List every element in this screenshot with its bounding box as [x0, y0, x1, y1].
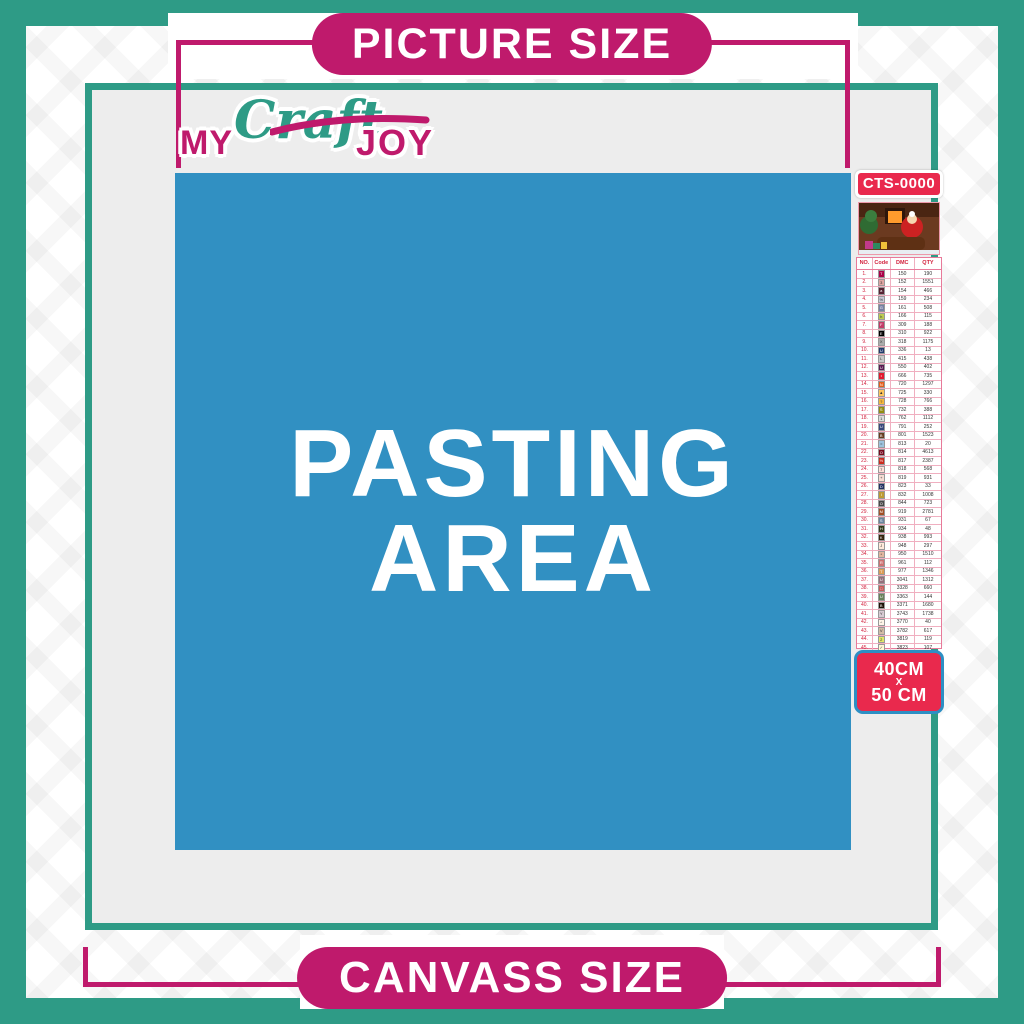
row-qty: 297 [915, 542, 941, 550]
row-dmc: 977 [891, 568, 915, 576]
row-dmc: 336 [891, 347, 915, 355]
row-qty: 234 [915, 296, 941, 304]
row-qty: 112 [915, 559, 941, 567]
row-symbol: U [873, 593, 891, 601]
row-dmc: 762 [891, 415, 915, 423]
row-dmc: 814 [891, 449, 915, 457]
row-dmc: 934 [891, 525, 915, 533]
row-qty: 115 [915, 313, 941, 321]
row-number: 37. [857, 576, 873, 584]
chart-row: 31.H93448 [857, 525, 941, 534]
row-qty: 931 [915, 474, 941, 482]
row-symbol: ? [873, 398, 891, 406]
chart-row: 42.^377040 [857, 619, 941, 628]
row-symbol: T [873, 270, 891, 278]
chart-row: 32.K938993 [857, 534, 941, 543]
row-symbol: B [873, 602, 891, 610]
row-number: 7. [857, 321, 873, 329]
row-qty: 13 [915, 347, 941, 355]
row-number: 35. [857, 559, 873, 567]
chart-row: 20.B8011523 [857, 432, 941, 441]
row-dmc: 159 [891, 296, 915, 304]
row-number: 15. [857, 389, 873, 397]
row-symbol: • [873, 372, 891, 380]
row-symbol: B [873, 432, 891, 440]
chart-row: 9.X3181175 [857, 338, 941, 347]
row-number: 33. [857, 542, 873, 550]
row-dmc: 154 [891, 287, 915, 295]
chart-row: 7.F309188 [857, 321, 941, 330]
row-qty: 67 [915, 517, 941, 525]
chart-row: 16.?728766 [857, 398, 941, 407]
row-dmc: 813 [891, 440, 915, 448]
chart-row: 43.V3782617 [857, 627, 941, 636]
row-symbol: U [873, 576, 891, 584]
row-number: 19. [857, 423, 873, 431]
row-symbol: V [873, 627, 891, 635]
row-qty: 1312 [915, 576, 941, 584]
row-number: 1. [857, 270, 873, 278]
header-dmc: DMC [891, 258, 915, 269]
row-symbol: K [873, 534, 891, 542]
row-number: 42. [857, 619, 873, 627]
row-dmc: 309 [891, 321, 915, 329]
row-dmc: 3770 [891, 619, 915, 627]
row-dmc: 725 [891, 389, 915, 397]
chart-row: 19.U791252 [857, 423, 941, 432]
row-number: 8. [857, 330, 873, 338]
product-thumbnail [858, 202, 940, 255]
row-qty: 402 [915, 364, 941, 372]
chart-row: 36.T9771346 [857, 568, 941, 577]
chart-row: 25.+819931 [857, 474, 941, 483]
canvas-size-badge: 40CM X 50 CM [854, 650, 944, 714]
chart-row: 4.%159234 [857, 296, 941, 305]
row-dmc: 166 [891, 313, 915, 321]
row-number: 17. [857, 406, 873, 414]
row-number: 25. [857, 474, 873, 482]
row-qty: 119 [915, 636, 941, 644]
color-chart-table: NO. Code DMC QTY 1.T1501902.315215513.a1… [856, 257, 942, 649]
row-qty: 723 [915, 500, 941, 508]
product-code: CTS-0000 [863, 175, 935, 192]
row-qty: 252 [915, 423, 941, 431]
row-qty: 508 [915, 304, 941, 312]
chart-row: 35.R961112 [857, 559, 941, 568]
row-dmc: 3743 [891, 610, 915, 618]
row-dmc: 817 [891, 457, 915, 465]
row-number: 11. [857, 355, 873, 363]
row-number: 5. [857, 304, 873, 312]
bracket-bottom-left-vertical [83, 947, 88, 987]
chart-row: 1.T150190 [857, 270, 941, 279]
chart-row: 27.I8321008 [857, 491, 941, 500]
chart-row: 10.U33613 [857, 347, 941, 356]
row-dmc: 801 [891, 432, 915, 440]
row-number: 44. [857, 636, 873, 644]
row-number: 32. [857, 534, 873, 542]
row-dmc: 961 [891, 559, 915, 567]
row-dmc: 844 [891, 500, 915, 508]
chart-row: 15.▲725330 [857, 389, 941, 398]
row-qty: 4613 [915, 449, 941, 457]
bracket-top-right-vertical [845, 40, 850, 168]
row-symbol: E [873, 330, 891, 338]
row-symbol: 2 [873, 636, 891, 644]
row-symbol: T [873, 568, 891, 576]
row-number: 4. [857, 296, 873, 304]
chart-row: 28.O844723 [857, 500, 941, 509]
row-symbol: R [873, 559, 891, 567]
row-dmc: 791 [891, 423, 915, 431]
row-symbol: ▲ [873, 389, 891, 397]
chart-row: 12.U550402 [857, 364, 941, 373]
row-symbol: U [873, 364, 891, 372]
row-qty: 1346 [915, 568, 941, 576]
row-symbol: J [873, 542, 891, 550]
row-number: 34. [857, 551, 873, 559]
row-symbol: H [873, 525, 891, 533]
row-qty: 766 [915, 398, 941, 406]
row-number: 28. [857, 500, 873, 508]
row-dmc: 318 [891, 338, 915, 346]
row-qty: 33 [915, 483, 941, 491]
row-dmc: 950 [891, 551, 915, 559]
chart-row: 3.a154466 [857, 287, 941, 296]
row-number: 43. [857, 627, 873, 635]
row-symbol: D [873, 483, 891, 491]
row-dmc: 161 [891, 304, 915, 312]
row-qty: 2387 [915, 457, 941, 465]
row-symbol: L [873, 355, 891, 363]
row-qty: 1112 [915, 415, 941, 423]
pasting-area-line2: AREA [369, 512, 657, 606]
row-symbol: S [873, 517, 891, 525]
row-qty: 40 [915, 619, 941, 627]
row-dmc: 3782 [891, 627, 915, 635]
bracket-top-left-horizontal [176, 40, 324, 45]
row-number: 6. [857, 313, 873, 321]
pasting-area-line1: PASTING [289, 417, 737, 511]
row-qty: 1297 [915, 381, 941, 389]
chart-row: 37.U30411312 [857, 576, 941, 585]
row-symbol: 1 [873, 415, 891, 423]
row-dmc: 3328 [891, 585, 915, 593]
row-number: 38. [857, 585, 873, 593]
canvass-size-label: CANVASS SIZE [339, 953, 685, 1002]
row-symbol: a [873, 287, 891, 295]
row-qty: 2781 [915, 508, 941, 516]
row-number: 26. [857, 483, 873, 491]
row-qty: 660 [915, 585, 941, 593]
row-number: 21. [857, 440, 873, 448]
chart-row: 18.17621112 [857, 415, 941, 424]
size-height: 50 CM [871, 687, 927, 704]
row-number: 30. [857, 517, 873, 525]
row-symbol: F [873, 321, 891, 329]
row-symbol: M [873, 508, 891, 516]
row-number: 12. [857, 364, 873, 372]
row-qty: 568 [915, 466, 941, 474]
row-qty: 1680 [915, 602, 941, 610]
row-qty: 1551 [915, 279, 941, 287]
row-number: 27. [857, 491, 873, 499]
pasting-area: PASTING AREA [175, 173, 851, 850]
row-symbol: U [873, 347, 891, 355]
row-qty: 330 [915, 389, 941, 397]
row-dmc: 415 [891, 355, 915, 363]
row-number: 39. [857, 593, 873, 601]
row-dmc: 550 [891, 364, 915, 372]
row-symbol: 7 [873, 466, 891, 474]
row-dmc: 948 [891, 542, 915, 550]
row-dmc: 310 [891, 330, 915, 338]
chart-row: 14.N7201297 [857, 381, 941, 390]
row-qty: 922 [915, 330, 941, 338]
row-qty: 388 [915, 406, 941, 414]
row-qty: 20 [915, 440, 941, 448]
row-qty: 1510 [915, 551, 941, 559]
row-number: 41. [857, 610, 873, 618]
chart-row: 41.Y37431738 [857, 610, 941, 619]
chart-row: 34.*9501510 [857, 551, 941, 560]
row-dmc: 720 [891, 381, 915, 389]
row-number: 2. [857, 279, 873, 287]
chart-row: 11.L415438 [857, 355, 941, 364]
row-number: 3. [857, 287, 873, 295]
row-dmc: 818 [891, 466, 915, 474]
logo-swoosh-icon [270, 112, 430, 138]
picture-size-banner: PICTURE SIZE [312, 13, 712, 75]
row-qty: 735 [915, 372, 941, 380]
row-symbol: Y [873, 610, 891, 618]
row-dmc: 152 [891, 279, 915, 287]
row-number: 29. [857, 508, 873, 516]
header-code: Code [873, 258, 891, 269]
row-qty: 466 [915, 287, 941, 295]
row-number: 13. [857, 372, 873, 380]
chart-row: 40.B33711680 [857, 602, 941, 611]
chart-row: 8.E310922 [857, 330, 941, 339]
row-qty: 1523 [915, 432, 941, 440]
mycraftjoy-logo: MY Craft JOY [178, 94, 448, 172]
row-symbol: G [873, 304, 891, 312]
row-qty: 188 [915, 321, 941, 329]
chart-row: 17.S732388 [857, 406, 941, 415]
row-symbol: = [873, 440, 891, 448]
row-qty: 1738 [915, 610, 941, 618]
logo-text-my: MY [180, 124, 233, 163]
row-number: 20. [857, 432, 873, 440]
row-symbol: O [873, 500, 891, 508]
chart-row: 39.U3363144 [857, 593, 941, 602]
row-symbol: O [873, 449, 891, 457]
row-number: 31. [857, 525, 873, 533]
row-dmc: 3371 [891, 602, 915, 610]
row-dmc: 150 [891, 270, 915, 278]
row-dmc: 666 [891, 372, 915, 380]
row-dmc: 931 [891, 517, 915, 525]
row-number: 16. [857, 398, 873, 406]
row-number: 23. [857, 457, 873, 465]
row-qty: 617 [915, 627, 941, 635]
row-symbol: 3 [873, 279, 891, 287]
row-dmc: 3819 [891, 636, 915, 644]
color-chart-body: 1.T1501902.315215513.a1544664.%1592345.G… [857, 270, 941, 677]
row-qty: 1008 [915, 491, 941, 499]
chart-row: 5.G161508 [857, 304, 941, 313]
color-chart-header: NO. Code DMC QTY [857, 258, 941, 270]
row-qty: 144 [915, 593, 941, 601]
row-number: 22. [857, 449, 873, 457]
bracket-bottom-right-vertical [936, 947, 941, 987]
row-symbol: S [873, 406, 891, 414]
row-symbol: ^ [873, 619, 891, 627]
row-symbol: U [873, 423, 891, 431]
row-qty: 993 [915, 534, 941, 542]
row-number: 9. [857, 338, 873, 346]
chart-row: 26.D82333 [857, 483, 941, 492]
bracket-bottom-right-horizontal [713, 982, 941, 987]
row-symbol: N [873, 381, 891, 389]
canvass-size-banner: CANVASS SIZE [297, 947, 727, 1009]
chart-row: 13.•666735 [857, 372, 941, 381]
row-number: 40. [857, 602, 873, 610]
row-dmc: 732 [891, 406, 915, 414]
row-number: 24. [857, 466, 873, 474]
christmas-scene-image [859, 203, 939, 254]
row-number: 18. [857, 415, 873, 423]
row-dmc: 3363 [891, 593, 915, 601]
chart-row: 33.J948297 [857, 542, 941, 551]
row-symbol: * [873, 551, 891, 559]
row-dmc: 3041 [891, 576, 915, 584]
row-symbol: X [873, 338, 891, 346]
chart-row: 30.S93167 [857, 517, 941, 526]
row-dmc: 823 [891, 483, 915, 491]
row-number: 10. [857, 347, 873, 355]
header-no: NO. [857, 258, 873, 269]
row-symbol: □ [873, 585, 891, 593]
chart-row: 38.□3328660 [857, 585, 941, 594]
row-number: 14. [857, 381, 873, 389]
row-dmc: 938 [891, 534, 915, 542]
row-dmc: 832 [891, 491, 915, 499]
chart-row: 24.7818568 [857, 466, 941, 475]
chart-row: 29.M9192781 [857, 508, 941, 517]
row-dmc: 728 [891, 398, 915, 406]
row-symbol: h [873, 313, 891, 321]
bracket-top-right-horizontal [702, 40, 850, 45]
row-symbol: + [873, 474, 891, 482]
row-qty: 190 [915, 270, 941, 278]
row-number: 36. [857, 568, 873, 576]
chart-row: 22.O8144613 [857, 449, 941, 458]
row-dmc: 819 [891, 474, 915, 482]
chart-row: 44.23819119 [857, 636, 941, 645]
row-symbol: I [873, 491, 891, 499]
chart-row: 2.31521551 [857, 279, 941, 288]
row-qty: 1175 [915, 338, 941, 346]
row-qty: 48 [915, 525, 941, 533]
size-width: 40CM [874, 661, 924, 678]
row-symbol: % [873, 296, 891, 304]
row-symbol: ½ [873, 457, 891, 465]
chart-row: 21.=81320 [857, 440, 941, 449]
picture-size-label: PICTURE SIZE [352, 20, 672, 68]
row-dmc: 919 [891, 508, 915, 516]
chart-row: 23.½8172387 [857, 457, 941, 466]
header-qty: QTY [915, 258, 941, 269]
row-qty: 438 [915, 355, 941, 363]
product-code-badge: CTS-0000 [855, 170, 943, 198]
bracket-bottom-left-horizontal [83, 982, 311, 987]
chart-row: 6.h166115 [857, 313, 941, 322]
